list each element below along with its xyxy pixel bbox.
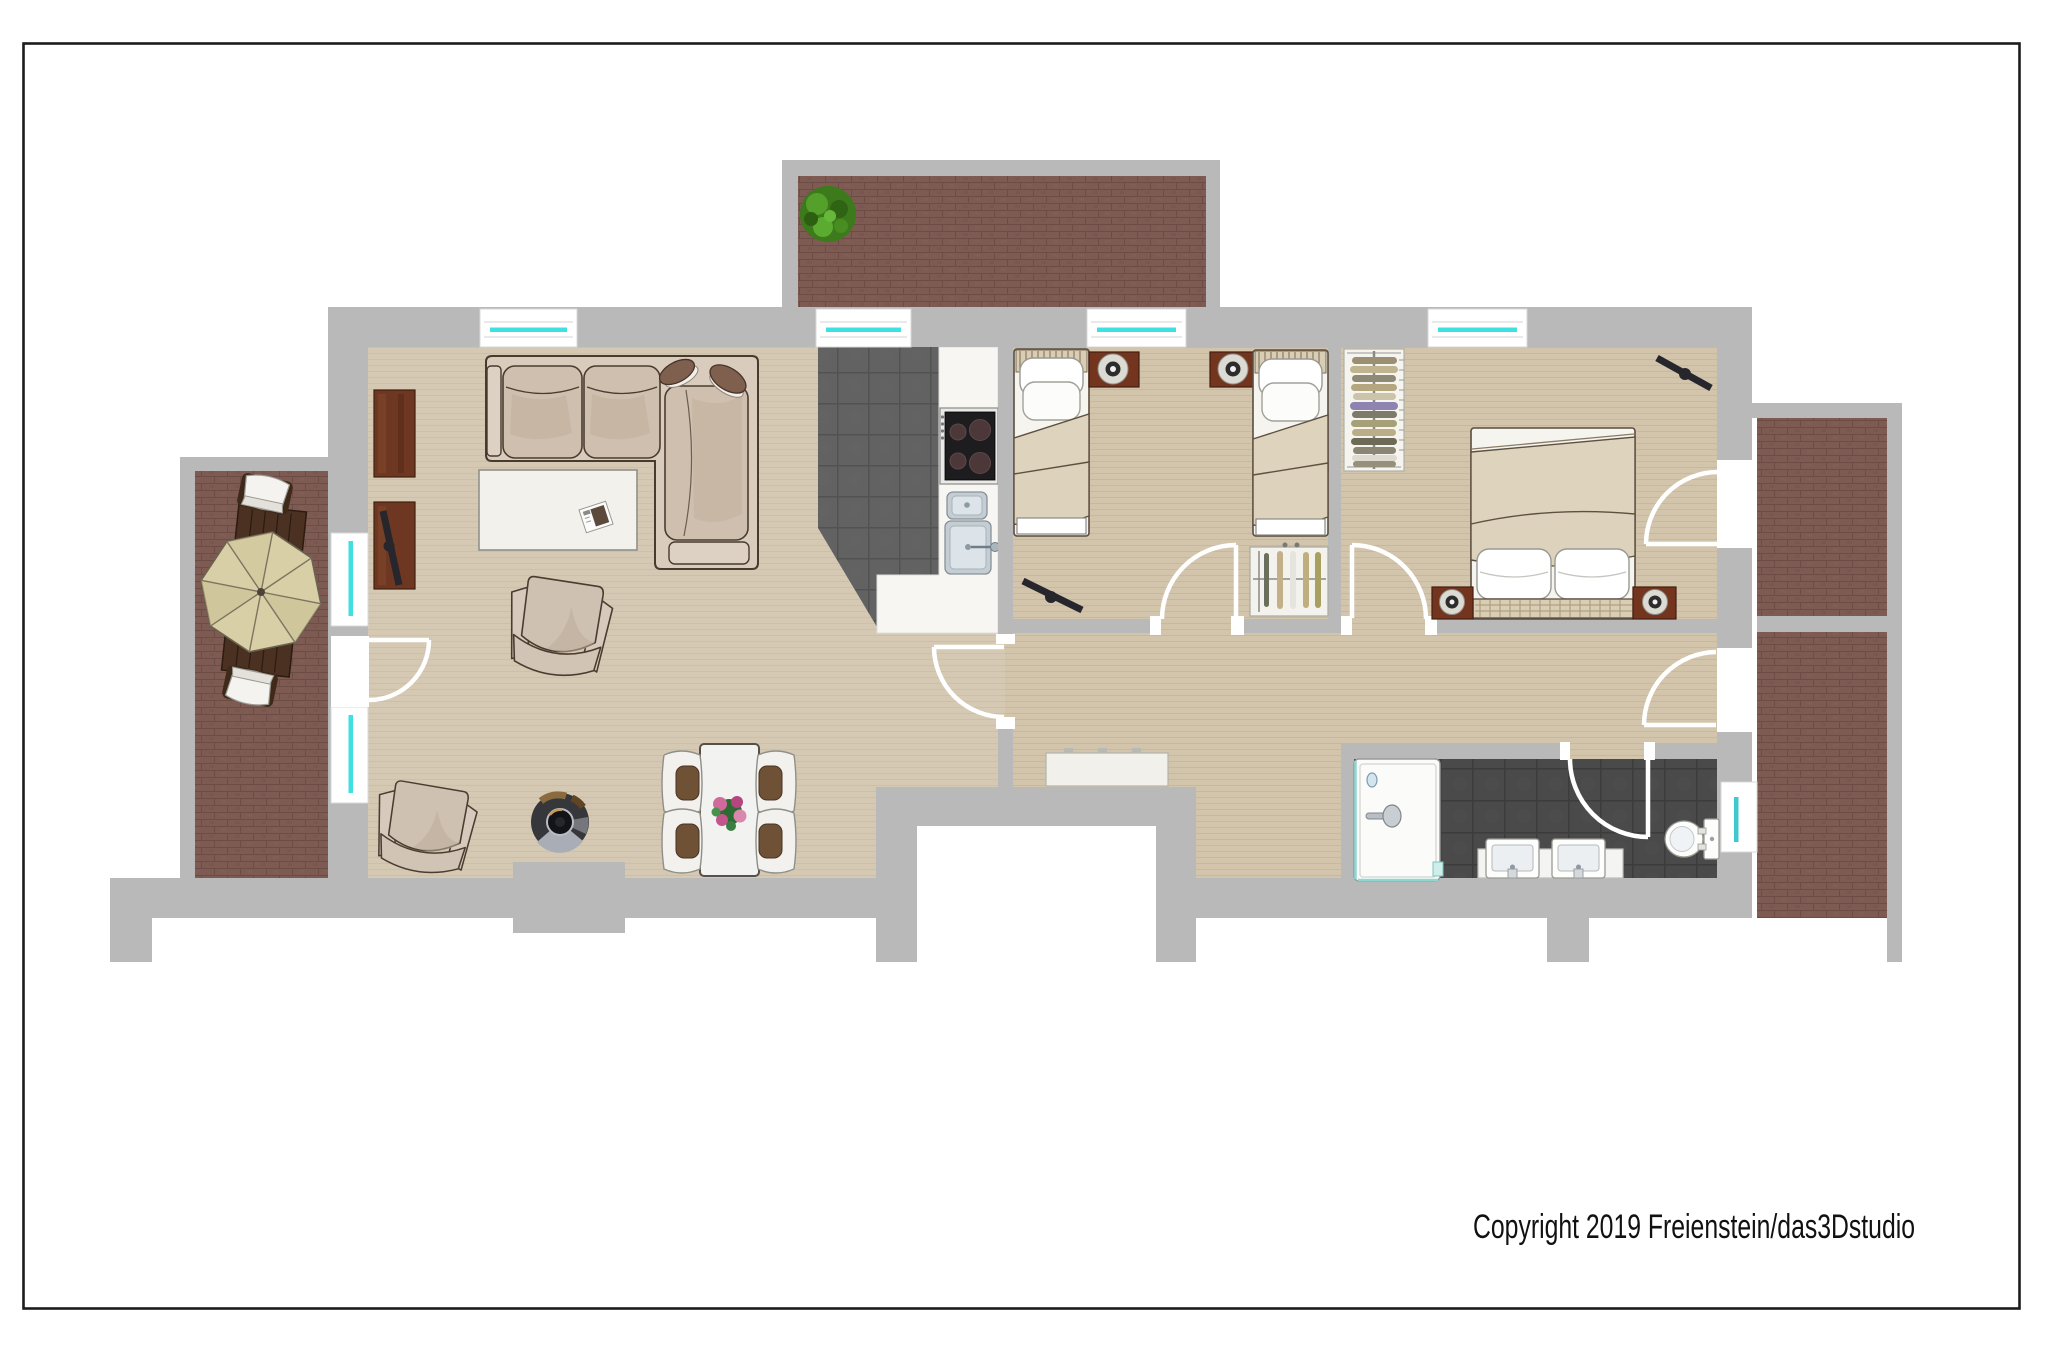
svg-text:Copyright 2019 Freienstein/das: Copyright 2019 Freienstein/das3Dstudio	[1473, 1208, 1915, 1246]
